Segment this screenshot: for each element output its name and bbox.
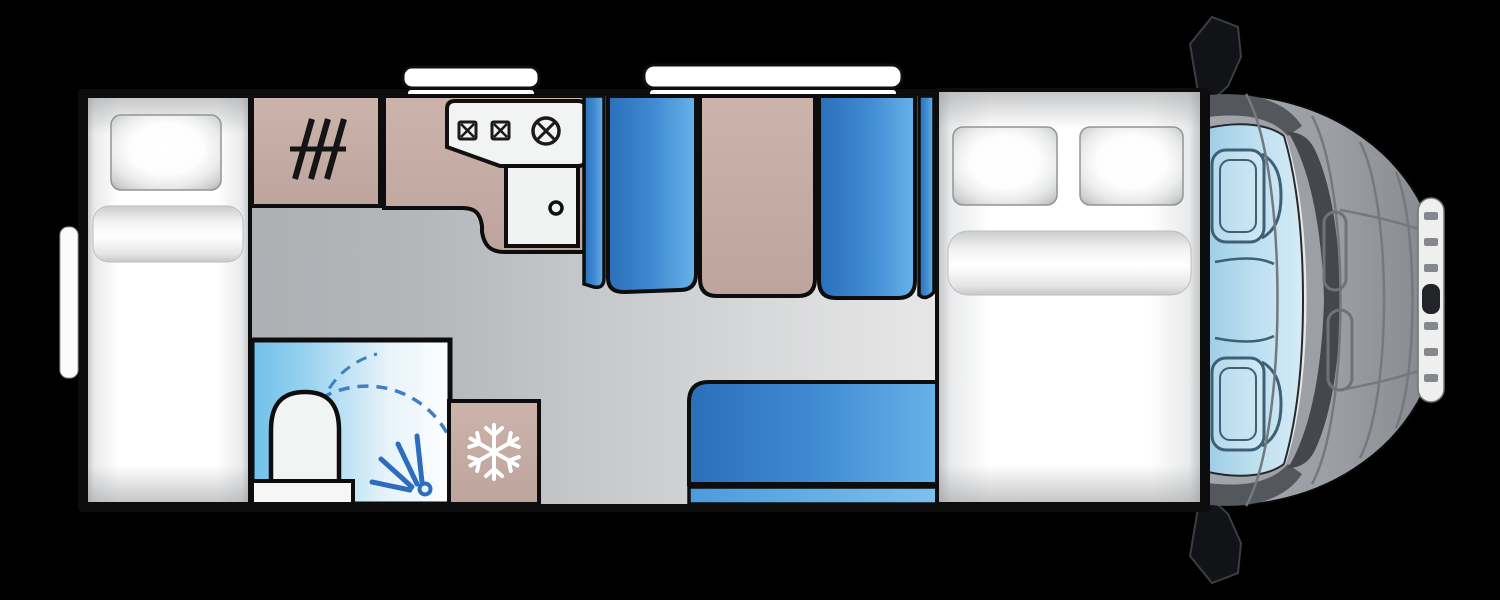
sink [506,166,578,246]
washroom [252,340,450,504]
skylight-dinette [644,65,902,96]
pillow [111,115,221,190]
grille-badge [1422,284,1440,314]
single-bed [86,96,250,504]
sofa-seat [689,382,937,484]
dinette [584,96,934,298]
pillow [953,127,1057,205]
cab [1190,17,1445,583]
duvet [948,231,1191,295]
hob-panel [447,101,586,166]
mirror-bottom-icon [1190,501,1241,583]
wardrobe [252,96,380,206]
bench-backrest [584,96,604,287]
bench-seat [819,96,915,298]
floorplan-canvas [0,0,1500,600]
front-grille [1418,198,1444,402]
bench-seat [608,96,696,292]
sofa [689,382,937,504]
double-bed [937,90,1202,504]
dinette-table [700,96,815,296]
mirror-top-icon [1190,17,1241,99]
duvet [93,206,243,262]
floorplan-svg [0,0,1500,600]
bench-backrest [919,96,934,297]
pillow [1080,127,1183,205]
entry-door [60,227,78,378]
fridge [449,401,539,504]
skylight-kitchen [403,67,539,96]
sofa-backrest [689,487,937,504]
